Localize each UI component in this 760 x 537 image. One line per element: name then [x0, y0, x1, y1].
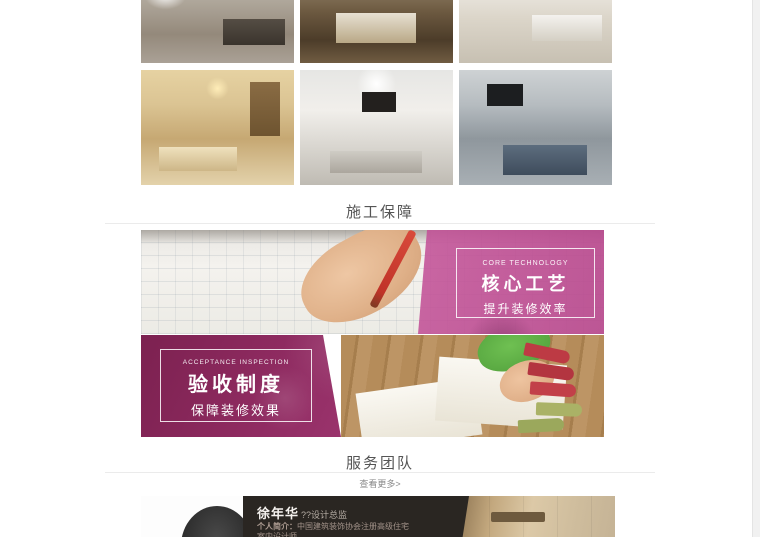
gallery-photo-dining-room[interactable]: Designer Yan [300, 0, 453, 63]
banner-subtitle: 保障装修效果 [161, 400, 311, 419]
banner-tagline: CORE TECHNOLOGY [457, 260, 594, 267]
pink-overlay: CORE TECHNOLOGY 核心工艺 提升装修效率 [418, 230, 604, 334]
gallery-photo-living-room-1[interactable]: Designer Yan [141, 0, 294, 63]
view-more-link[interactable]: 查看更多> [0, 477, 760, 490]
designer-card[interactable]: 徐年华??设计总监 个人简介：中国建筑装饰协会注册高级住宅 室内设计师 [141, 496, 615, 537]
gallery-photo-living-room-4[interactable] [300, 70, 453, 185]
banner-title: 核心工艺 [457, 270, 594, 296]
bio-label: 个人简介： [257, 522, 297, 531]
gallery-photo-living-room-5[interactable] [459, 70, 612, 185]
designer-info-panel: 徐年华??设计总监 个人简介：中国建筑装饰协会注册高级住宅 室内设计师 [243, 496, 615, 537]
color-swatch-photo [341, 335, 604, 437]
banner-text-box: ACCEPTANCE INSPECTION 验收制度 保障装修效果 [160, 349, 312, 422]
hand-illustration [286, 230, 437, 334]
gallery-photo-living-room-2[interactable]: Designer Yan [459, 0, 612, 63]
section-divider [105, 472, 655, 473]
portrait-head-silhouette [181, 506, 243, 537]
page-scrollbar[interactable] [752, 0, 760, 537]
designer-portrait-photo [141, 496, 243, 537]
construction-section-title: 施工保障 [0, 201, 760, 222]
designer-bio: 个人简介：中国建筑装饰协会注册高级住宅 室内设计师 [257, 522, 437, 537]
designer-work-photo [455, 496, 615, 537]
green-swatch [518, 418, 565, 433]
designer-name: 徐年华 [257, 506, 299, 521]
banner-core-technology[interactable]: CORE TECHNOLOGY 核心工艺 提升装修效率 [141, 230, 604, 334]
page: Designer Yan Designer Yan Designer Yan 施… [0, 0, 760, 537]
green-swatch [536, 402, 582, 417]
bio-text-line2: 室内设计师 [257, 532, 297, 537]
banner-subtitle: 提升装修效率 [457, 300, 594, 317]
banner-text-box: CORE TECHNOLOGY 核心工艺 提升装修效率 [456, 248, 595, 318]
banner-title: 验收制度 [161, 368, 311, 397]
designer-name-row: 徐年华??设计总监 [257, 503, 347, 523]
case-gallery: Designer Yan Designer Yan Designer Yan [141, 0, 612, 185]
banner-tagline: ACCEPTANCE INSPECTION [161, 359, 311, 366]
section-divider [105, 223, 655, 224]
gallery-photo-living-room-3[interactable] [141, 70, 294, 185]
dark-magenta-overlay: ACCEPTANCE INSPECTION 验收制度 保障装修效果 [141, 335, 341, 437]
team-section-title: 服务团队 [0, 452, 760, 473]
ceiling-vent-illustration [491, 512, 545, 522]
bio-text-line1: 中国建筑装饰协会注册高级住宅 [297, 522, 409, 531]
banner-acceptance-inspection[interactable]: ACCEPTANCE INSPECTION 验收制度 保障装修效果 [141, 335, 604, 437]
designer-role: ??设计总监 [301, 510, 347, 520]
